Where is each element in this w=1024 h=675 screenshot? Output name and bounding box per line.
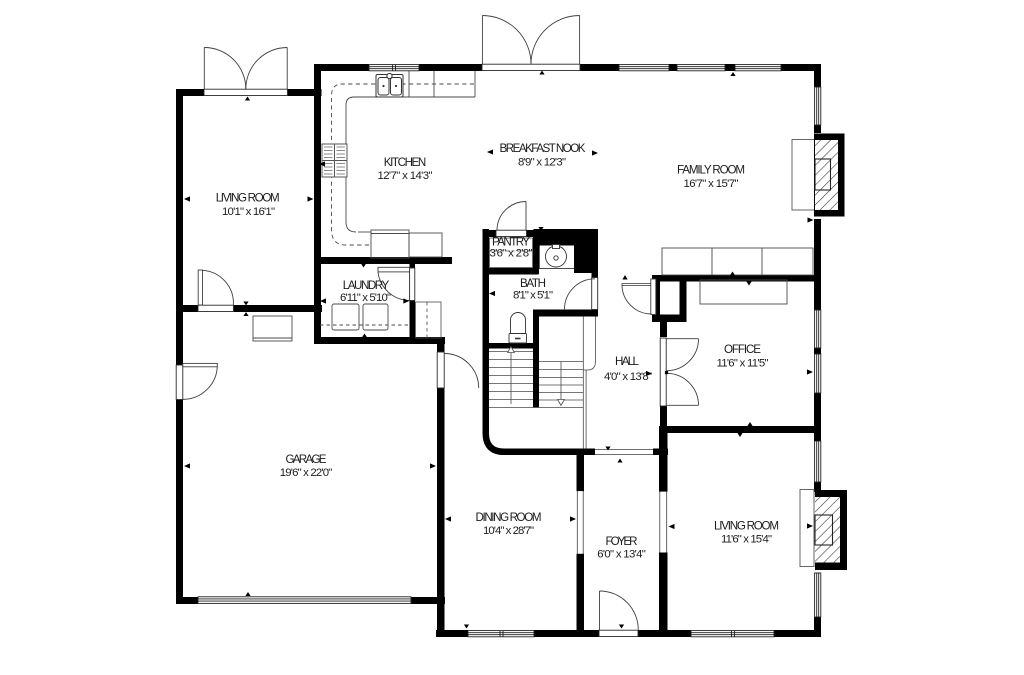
svg-text:FAMILY ROOM: FAMILY ROOM [677,164,745,177]
svg-text:GARAGE: GARAGE [286,453,327,466]
svg-text:LAUNDRY: LAUNDRY [343,279,390,292]
svg-text:19'6" x 22'0": 19'6" x 22'0" [280,467,333,479]
svg-text:BREAKFAST NOOK: BREAKFAST NOOK [500,142,586,155]
svg-text:BATH: BATH [520,277,546,290]
svg-text:6'11" x 5'10": 6'11" x 5'10" [340,292,391,304]
svg-text:16'7" x 15'7": 16'7" x 15'7" [684,178,739,190]
svg-text:HALL: HALL [615,355,640,368]
svg-text:8'1" x 5'1": 8'1" x 5'1" [513,290,553,302]
svg-text:10'1" x 16'1": 10'1" x 16'1" [222,206,275,218]
svg-text:OFFICE: OFFICE [724,343,761,356]
svg-text:11'6" x 11'5": 11'6" x 11'5" [717,358,769,370]
svg-text:6'0" x 13'4": 6'0" x 13'4" [597,549,646,561]
svg-text:11'6" x 15'4": 11'6" x 15'4" [721,534,772,546]
svg-text:8'9" x 12'3": 8'9" x 12'3" [518,157,566,169]
svg-text:PANTRY: PANTRY [492,235,530,248]
svg-text:KITCHEN: KITCHEN [384,156,427,169]
svg-text:12'7" x 14'3": 12'7" x 14'3" [378,170,433,182]
svg-text:10'4" x 28'7": 10'4" x 28'7" [483,525,534,537]
svg-text:DINING ROOM: DINING ROOM [476,511,542,524]
svg-text:3'6" x 2'8": 3'6" x 2'8" [490,247,533,259]
svg-text:4'0" x 13'8": 4'0" x 13'8" [604,371,652,383]
svg-text:LIVING ROOM: LIVING ROOM [714,520,779,533]
svg-text:LIVING ROOM: LIVING ROOM [216,192,280,205]
svg-text:FOYER: FOYER [606,535,638,548]
